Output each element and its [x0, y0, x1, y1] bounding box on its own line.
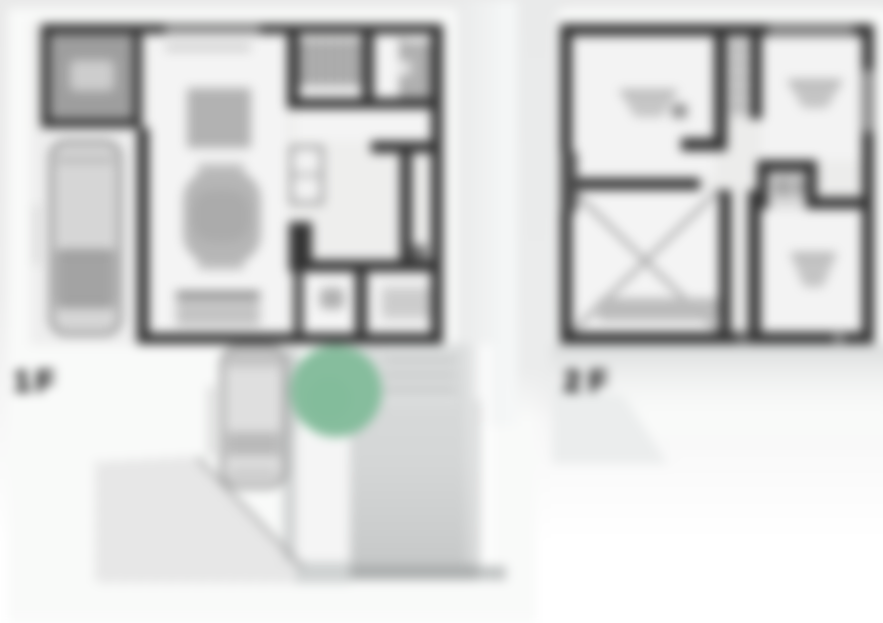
svg-text:2F: 2F	[564, 365, 615, 398]
svg-text:1F: 1F	[14, 365, 59, 398]
